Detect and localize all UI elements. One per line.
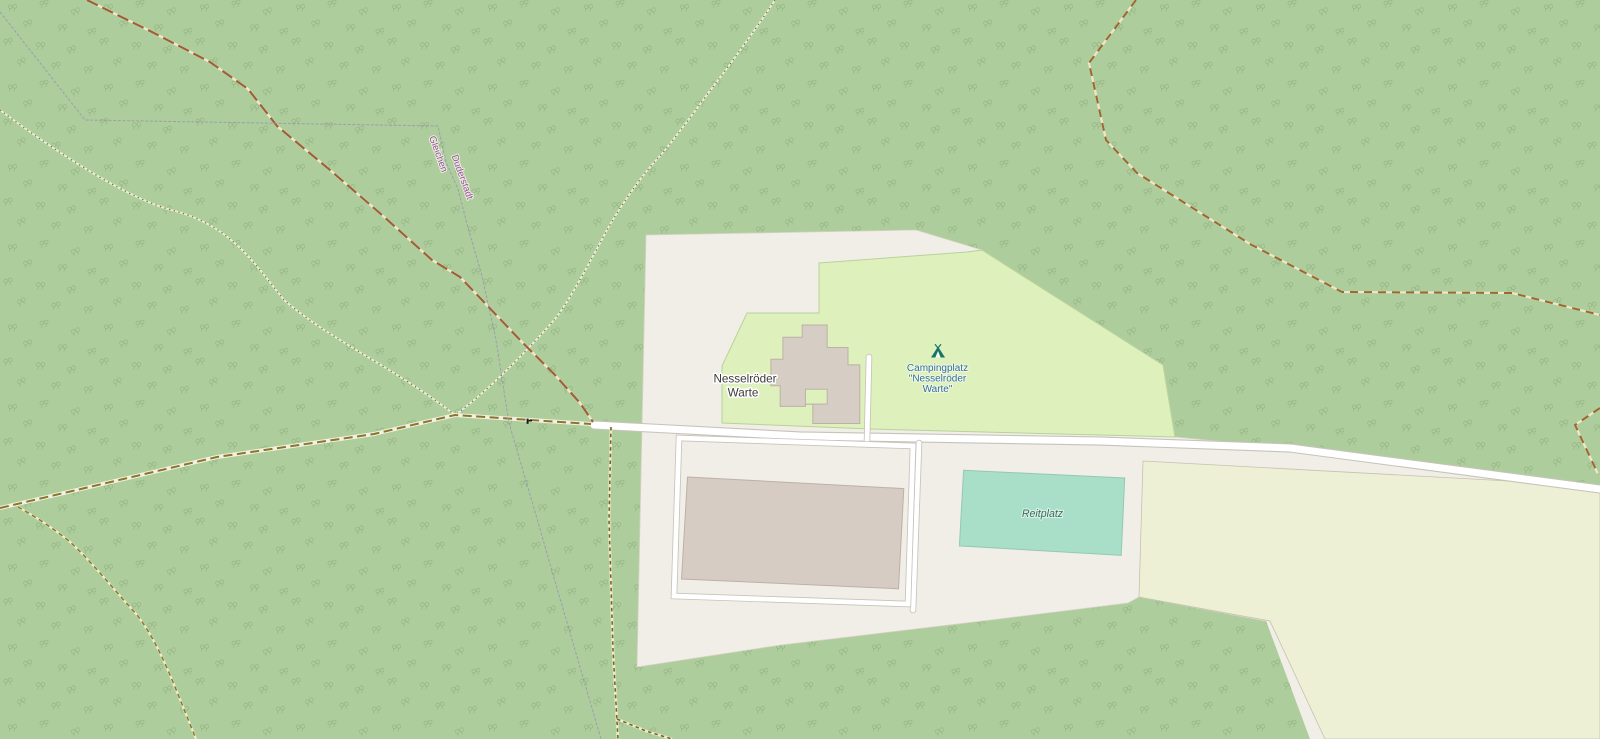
svg-text:Reitplatz: Reitplatz — [1022, 508, 1064, 520]
svg-text:Warte": Warte" — [923, 384, 953, 395]
svg-text:Nesselröder: Nesselröder — [713, 372, 776, 385]
svg-text:Warte: Warte — [728, 387, 759, 400]
svg-text:"Nesselröder: "Nesselröder — [909, 374, 967, 385]
svg-text:Campingplatz: Campingplatz — [907, 363, 968, 374]
